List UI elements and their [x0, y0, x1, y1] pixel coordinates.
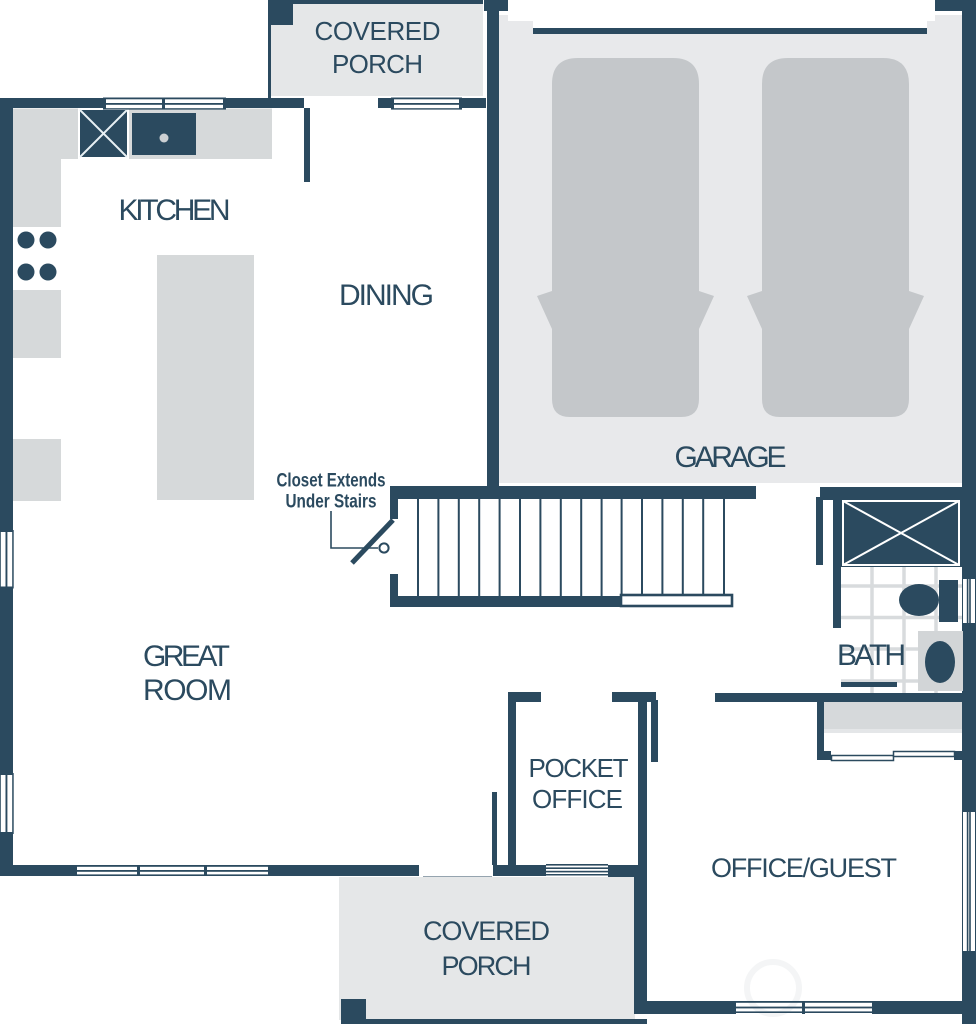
- svg-text:COVERED: COVERED: [315, 16, 442, 46]
- svg-text:Under Stairs: Under Stairs: [286, 491, 377, 513]
- svg-text:GREAT: GREAT: [143, 640, 231, 673]
- svg-text:Closet Extends: Closet Extends: [277, 470, 386, 492]
- svg-text:POCKET: POCKET: [529, 753, 630, 783]
- svg-text:BATH: BATH: [837, 639, 906, 672]
- svg-text:KITCHEN: KITCHEN: [119, 194, 232, 227]
- svg-text:PORCH: PORCH: [332, 49, 424, 79]
- svg-text:GARAGE: GARAGE: [675, 441, 788, 474]
- svg-text:OFFICE/GUEST: OFFICE/GUEST: [711, 853, 897, 883]
- svg-text:OFFICE: OFFICE: [532, 784, 624, 814]
- svg-text:DINING: DINING: [339, 279, 435, 312]
- svg-text:PORCH: PORCH: [442, 951, 533, 981]
- svg-text:ROOM: ROOM: [143, 674, 233, 707]
- svg-text:COVERED: COVERED: [423, 916, 551, 946]
